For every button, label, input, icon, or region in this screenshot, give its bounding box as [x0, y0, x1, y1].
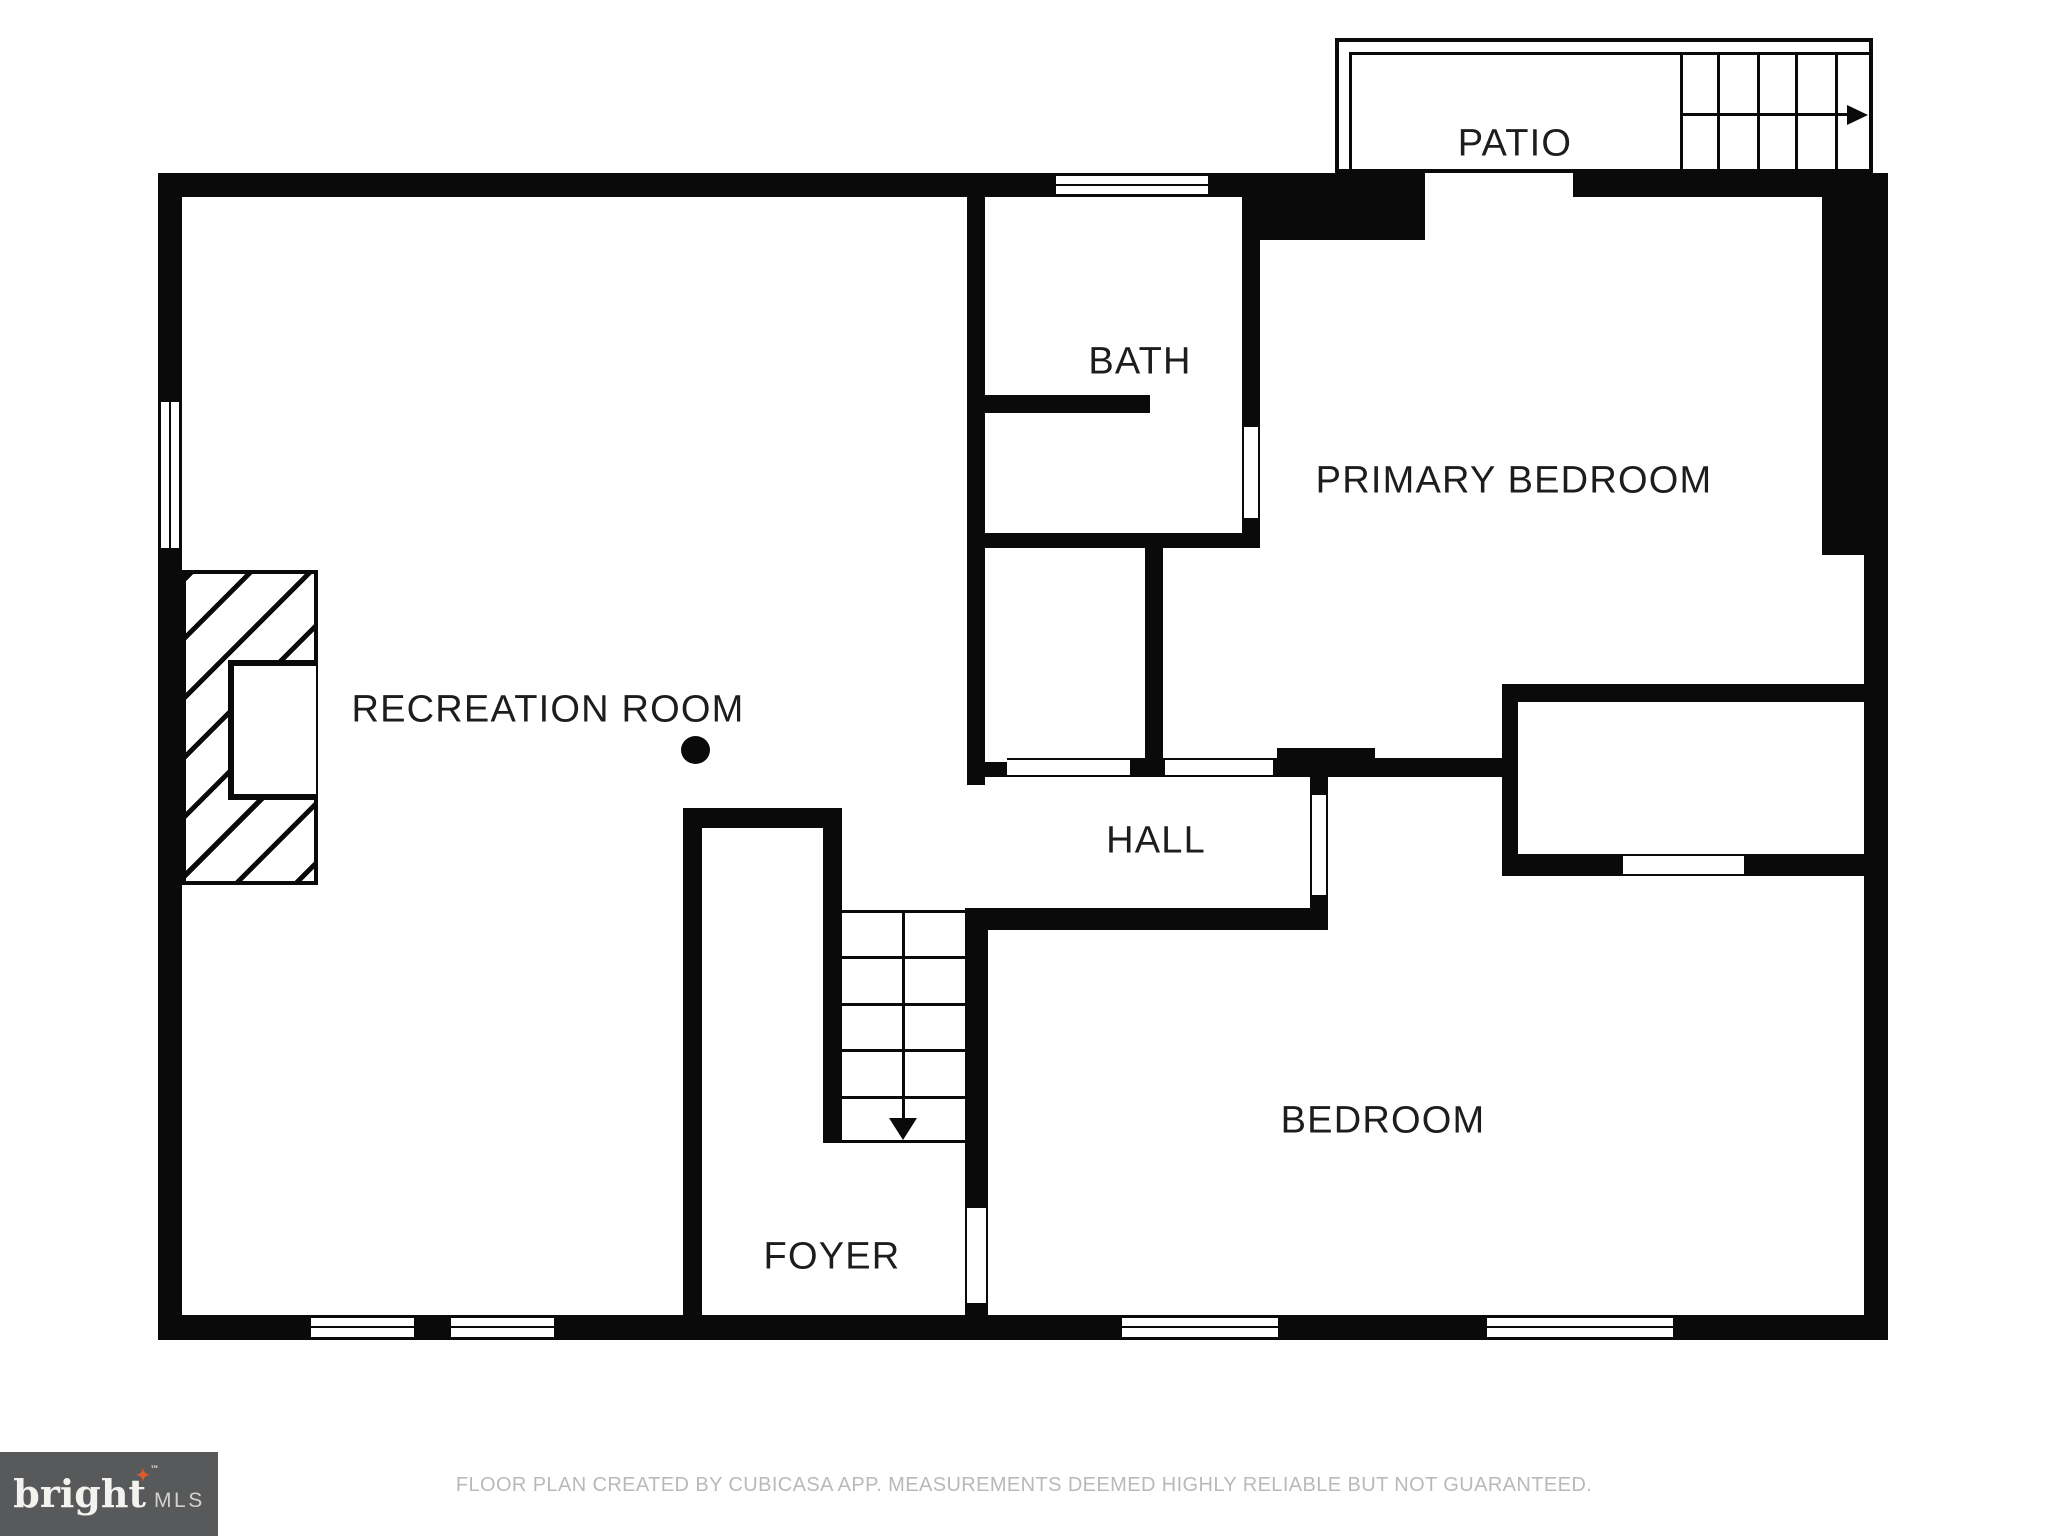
wall: [1242, 518, 1260, 548]
wall: [1864, 555, 1888, 1340]
wall: [1287, 1315, 1478, 1340]
wall: [683, 808, 842, 828]
fireplace-firebox: [228, 660, 318, 800]
wall: [1502, 854, 1623, 876]
bright-mls-logo: bright✦™ MLS: [0, 1452, 218, 1536]
wall: [1242, 197, 1425, 240]
room-label-bedroom: BEDROOM: [1281, 1100, 1486, 1143]
column-dot: [681, 736, 710, 764]
wall: [967, 533, 1260, 548]
wall: [1744, 854, 1864, 876]
star-icon: ✦: [136, 1468, 150, 1485]
hall-opening: [1007, 758, 1130, 777]
wall: [1502, 684, 1864, 702]
room-label-bath: BATH: [1088, 341, 1191, 384]
wall: [158, 1315, 302, 1340]
wall: [985, 395, 1150, 413]
room-label-patio: PATIO: [1458, 123, 1572, 166]
wall: [1217, 173, 1425, 197]
window: [1478, 1315, 1682, 1340]
patio-inner-line: [1349, 52, 1352, 173]
wall: [1682, 1315, 1888, 1340]
logo-brand-text: bright✦™: [13, 1475, 146, 1513]
logo-suffix-text: MLS: [154, 1489, 205, 1513]
wall: [423, 1315, 442, 1340]
wall: [1310, 895, 1328, 930]
wall: [683, 808, 702, 1315]
patio-stair-direction-line: [1680, 113, 1852, 116]
stairs-up-arrow-icon: [1847, 105, 1868, 125]
wall: [1822, 173, 1888, 555]
bedroom-door-opening: [1310, 795, 1328, 900]
bath-door-opening: [1242, 427, 1260, 518]
wall: [965, 1303, 988, 1315]
patio-outline: [1335, 38, 1873, 173]
trademark-symbol: ™: [150, 1466, 159, 1475]
window: [1047, 173, 1217, 197]
wall: [563, 1315, 1113, 1340]
wall: [1242, 240, 1260, 427]
wall: [965, 930, 988, 1208]
foyer-bedroom-door-opening: [965, 1208, 988, 1303]
room-label-recreation-room: RECREATION ROOM: [351, 689, 744, 732]
window: [442, 1315, 563, 1340]
wall: [1310, 775, 1328, 795]
hall-opening: [1165, 758, 1273, 777]
stairs-down-arrow-icon: [889, 1118, 917, 1140]
wall: [158, 173, 1047, 197]
wall: [1145, 548, 1163, 777]
wall: [823, 828, 842, 1143]
wall: [965, 908, 1328, 930]
closet-door-opening: [1623, 854, 1744, 876]
window: [302, 1315, 423, 1340]
room-label-foyer: FOYER: [764, 1236, 901, 1279]
floor-plan-page: PATIO: [0, 0, 2048, 1536]
wall: [1277, 748, 1375, 777]
wall: [985, 762, 1007, 777]
wall: [1130, 758, 1165, 777]
disclaimer-text: FLOOR PLAN CREATED BY CUBICASA APP. MEAS…: [0, 1474, 2048, 1497]
room-label-hall: HALL: [1106, 820, 1206, 863]
wall: [158, 557, 182, 1340]
staircase: [842, 910, 965, 1143]
wall: [158, 173, 182, 393]
window: [158, 393, 182, 557]
wall: [1502, 684, 1518, 876]
wall: [967, 197, 985, 785]
room-label-primary-bedroom: PRIMARY BEDROOM: [1316, 460, 1713, 503]
window: [1113, 1315, 1287, 1340]
